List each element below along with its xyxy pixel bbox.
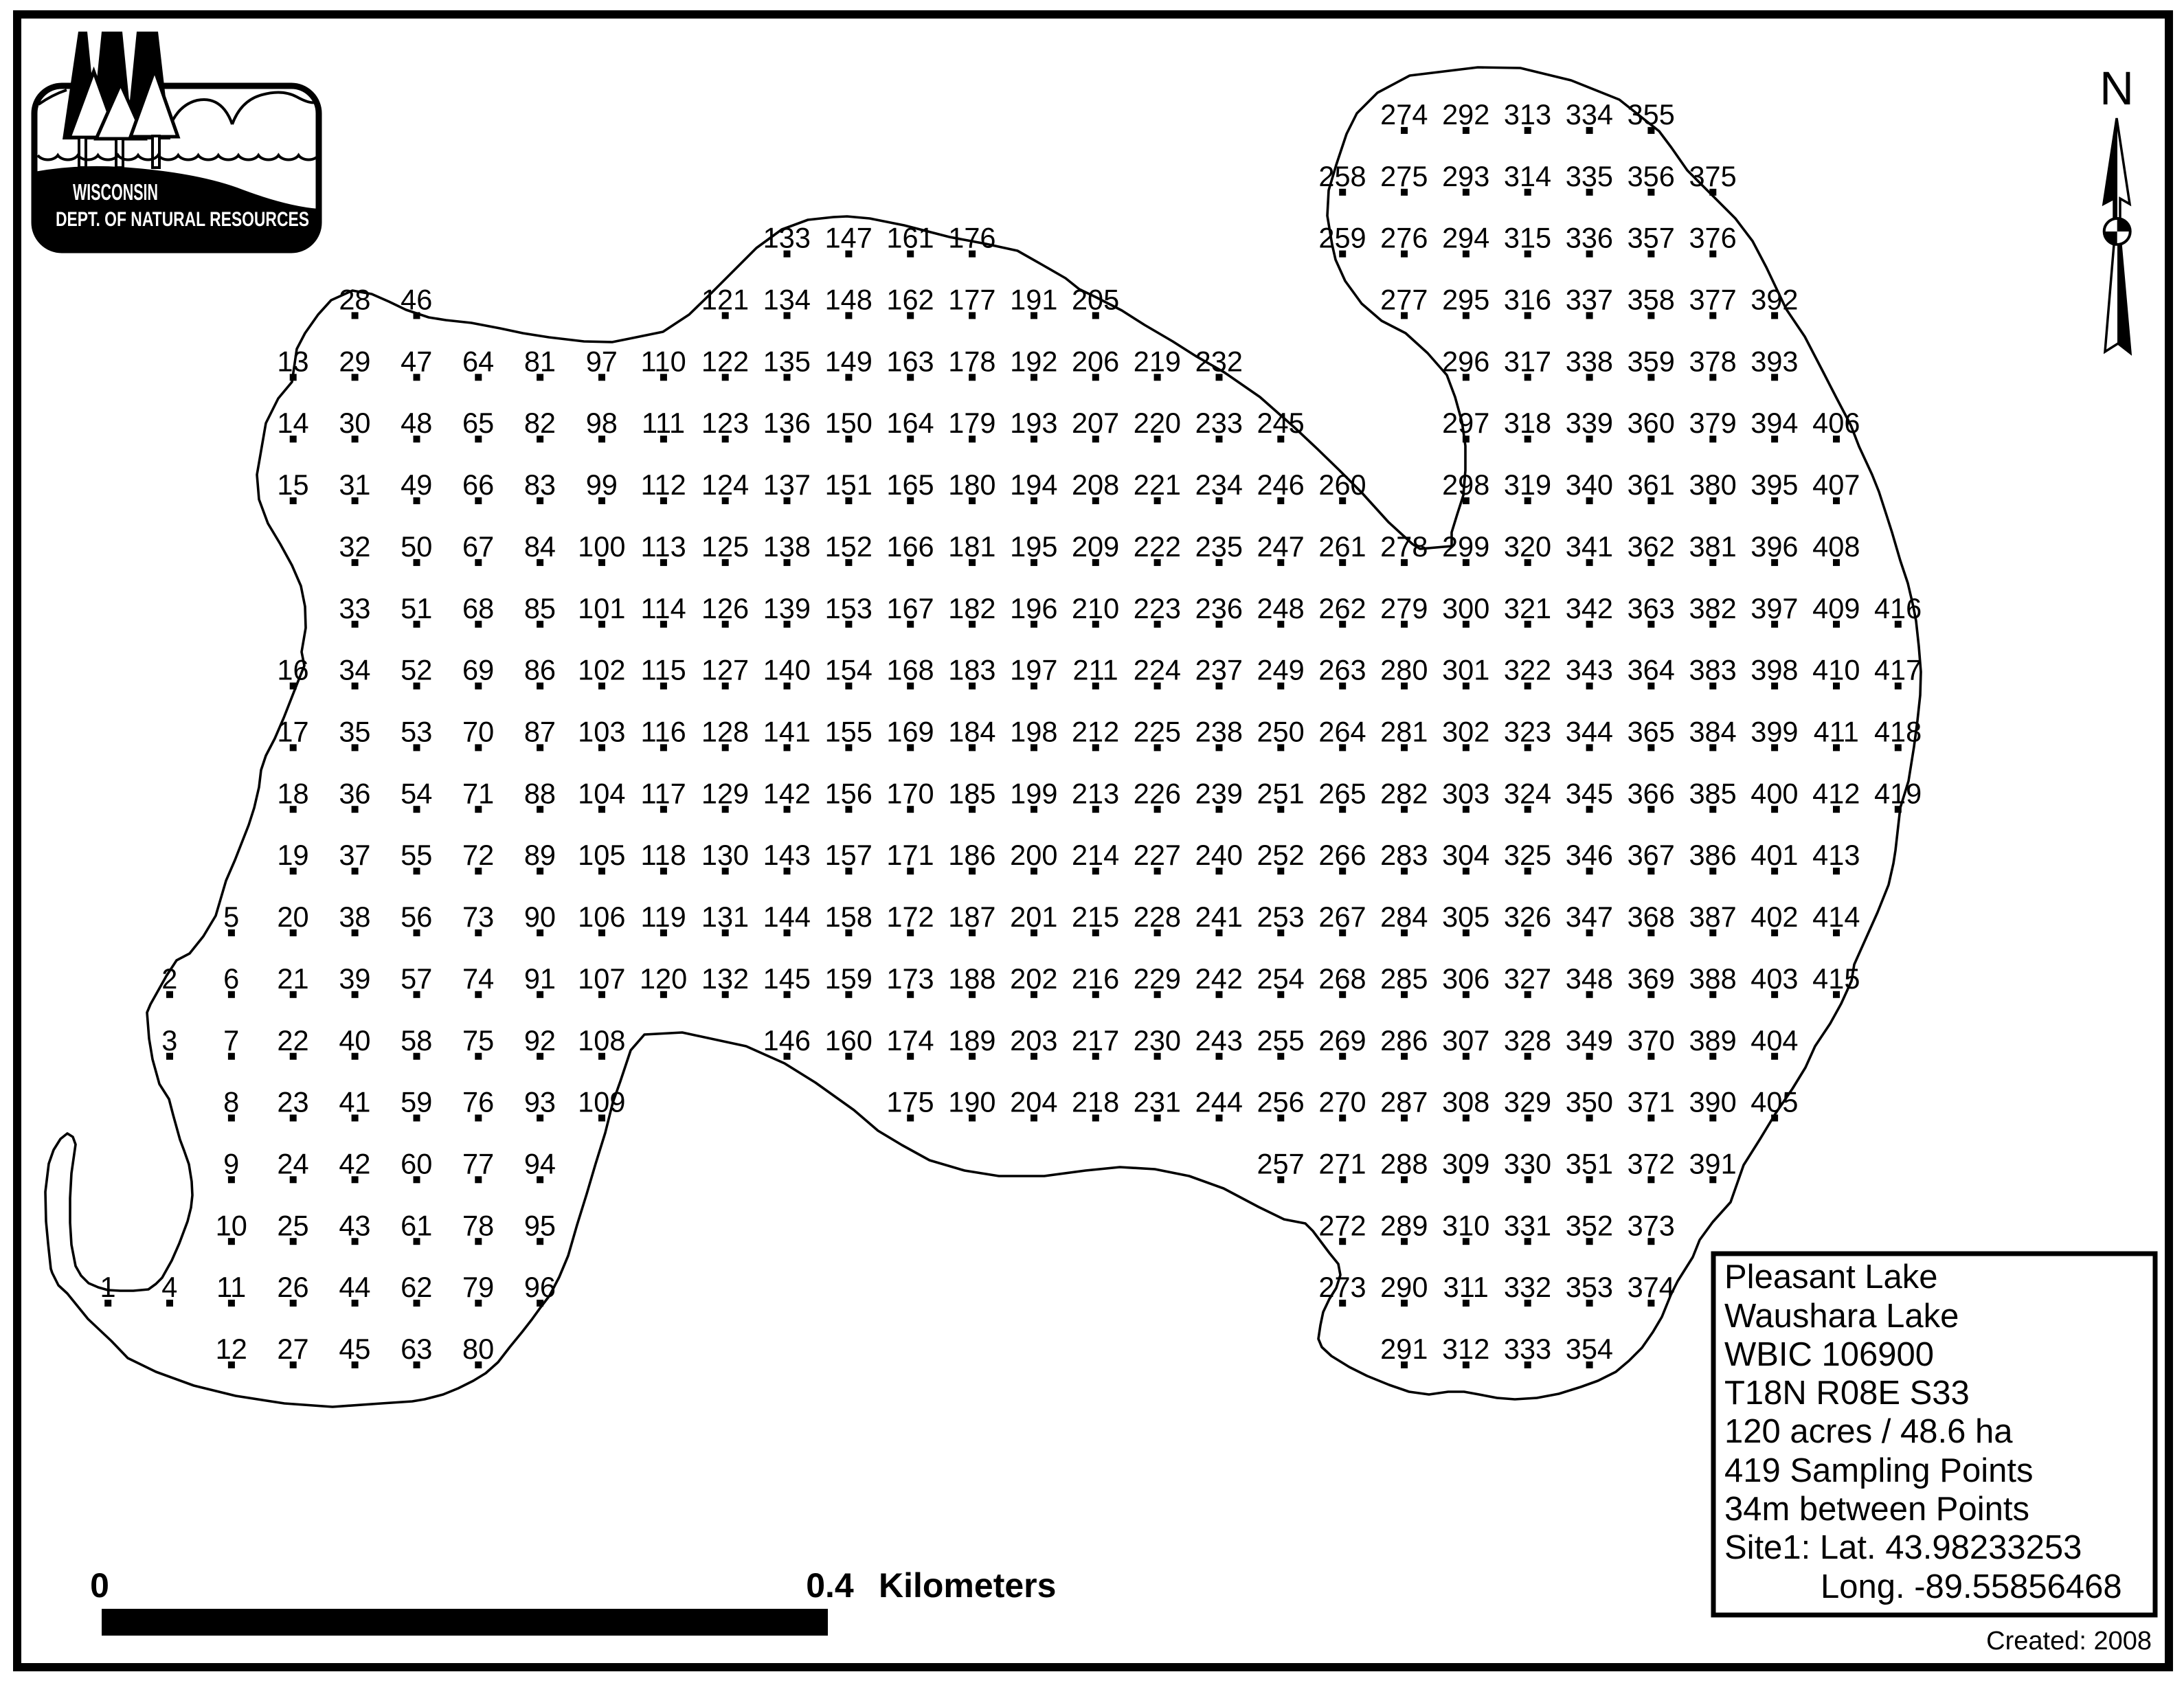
svg-text:358: 358 xyxy=(1628,284,1675,316)
svg-text:218: 218 xyxy=(1072,1086,1119,1118)
svg-text:363: 363 xyxy=(1628,592,1675,624)
svg-text:69: 69 xyxy=(462,654,494,686)
svg-text:331: 331 xyxy=(1504,1209,1551,1241)
svg-text:2: 2 xyxy=(161,962,177,995)
svg-text:284: 284 xyxy=(1380,901,1428,933)
svg-text:418: 418 xyxy=(1874,716,1922,748)
svg-text:131: 131 xyxy=(701,901,749,933)
svg-text:310: 310 xyxy=(1442,1209,1489,1241)
svg-text:171: 171 xyxy=(886,839,934,871)
svg-text:212: 212 xyxy=(1072,716,1119,748)
svg-text:59: 59 xyxy=(401,1086,432,1118)
svg-text:110: 110 xyxy=(641,345,686,377)
svg-text:5: 5 xyxy=(223,901,239,933)
svg-text:256: 256 xyxy=(1257,1086,1304,1118)
svg-text:12: 12 xyxy=(216,1333,247,1365)
svg-text:174: 174 xyxy=(886,1024,934,1057)
svg-text:321: 321 xyxy=(1504,592,1551,624)
svg-text:405: 405 xyxy=(1750,1086,1798,1118)
svg-text:166: 166 xyxy=(886,530,934,563)
svg-text:18: 18 xyxy=(277,777,308,809)
svg-text:376: 376 xyxy=(1689,222,1736,254)
svg-text:39: 39 xyxy=(339,962,370,995)
svg-text:338: 338 xyxy=(1566,345,1613,377)
svg-text:367: 367 xyxy=(1628,839,1675,871)
svg-text:99: 99 xyxy=(586,468,618,501)
svg-text:196: 196 xyxy=(1010,592,1057,624)
svg-text:305: 305 xyxy=(1442,901,1489,933)
svg-text:139: 139 xyxy=(763,592,811,624)
svg-text:34: 34 xyxy=(339,654,370,686)
svg-text:329: 329 xyxy=(1504,1086,1551,1118)
svg-text:76: 76 xyxy=(462,1086,494,1118)
svg-text:204: 204 xyxy=(1010,1086,1057,1118)
svg-text:245: 245 xyxy=(1257,407,1304,439)
svg-text:94: 94 xyxy=(524,1147,556,1179)
svg-text:120 acres / 48.6 ha: 120 acres / 48.6 ha xyxy=(1724,1413,2013,1450)
svg-text:4: 4 xyxy=(161,1271,177,1303)
svg-text:319: 319 xyxy=(1504,468,1551,501)
svg-text:47: 47 xyxy=(401,345,432,377)
svg-text:183: 183 xyxy=(948,654,995,686)
svg-text:231: 231 xyxy=(1134,1086,1181,1118)
svg-text:209: 209 xyxy=(1072,530,1119,563)
svg-text:181: 181 xyxy=(948,530,995,563)
svg-text:222: 222 xyxy=(1134,530,1181,563)
svg-text:142: 142 xyxy=(763,777,811,809)
svg-text:93: 93 xyxy=(524,1086,556,1118)
svg-text:226: 226 xyxy=(1134,777,1181,809)
svg-text:98: 98 xyxy=(586,407,618,439)
svg-text:148: 148 xyxy=(825,284,873,316)
svg-text:158: 158 xyxy=(825,901,873,933)
svg-text:13: 13 xyxy=(277,345,308,377)
svg-text:409: 409 xyxy=(1812,592,1860,624)
svg-text:86: 86 xyxy=(524,654,556,686)
svg-text:91: 91 xyxy=(524,962,556,995)
svg-text:84: 84 xyxy=(524,530,556,563)
svg-text:307: 307 xyxy=(1442,1024,1489,1057)
svg-text:341: 341 xyxy=(1566,530,1613,563)
svg-text:377: 377 xyxy=(1689,284,1736,316)
svg-text:275: 275 xyxy=(1380,160,1428,192)
svg-text:360: 360 xyxy=(1628,407,1675,439)
svg-text:375: 375 xyxy=(1689,160,1736,192)
svg-text:403: 403 xyxy=(1750,962,1798,995)
svg-text:24: 24 xyxy=(277,1147,308,1179)
svg-text:388: 388 xyxy=(1689,962,1736,995)
svg-text:130: 130 xyxy=(701,839,749,871)
svg-text:178: 178 xyxy=(948,345,995,377)
svg-text:356: 356 xyxy=(1628,160,1675,192)
svg-text:74: 74 xyxy=(462,962,494,995)
svg-text:408: 408 xyxy=(1812,530,1860,563)
svg-text:138: 138 xyxy=(763,530,811,563)
svg-text:160: 160 xyxy=(825,1024,873,1057)
svg-text:37: 37 xyxy=(339,839,370,871)
svg-text:252: 252 xyxy=(1257,839,1304,871)
svg-text:304: 304 xyxy=(1442,839,1489,871)
svg-text:119: 119 xyxy=(641,901,686,933)
svg-text:WISCONSIN: WISCONSIN xyxy=(73,179,158,205)
svg-text:104: 104 xyxy=(578,777,625,809)
svg-text:240: 240 xyxy=(1195,839,1243,871)
svg-text:274: 274 xyxy=(1380,98,1428,131)
svg-text:193: 193 xyxy=(1010,407,1057,439)
svg-text:34m between Points: 34m between Points xyxy=(1724,1491,2029,1528)
svg-text:221: 221 xyxy=(1134,468,1181,501)
svg-text:416: 416 xyxy=(1874,592,1922,624)
svg-text:120: 120 xyxy=(640,962,687,995)
svg-text:265: 265 xyxy=(1318,777,1366,809)
svg-text:326: 326 xyxy=(1504,901,1551,933)
svg-text:184: 184 xyxy=(948,716,995,748)
svg-text:410: 410 xyxy=(1812,654,1860,686)
svg-text:28: 28 xyxy=(339,284,370,316)
svg-text:380: 380 xyxy=(1689,468,1736,501)
svg-text:72: 72 xyxy=(462,839,494,871)
svg-text:254: 254 xyxy=(1257,962,1304,995)
svg-text:21: 21 xyxy=(277,962,308,995)
svg-text:250: 250 xyxy=(1257,716,1304,748)
svg-text:238: 238 xyxy=(1195,716,1243,748)
svg-text:63: 63 xyxy=(401,1333,432,1365)
svg-text:81: 81 xyxy=(524,345,556,377)
svg-text:303: 303 xyxy=(1442,777,1489,809)
svg-text:283: 283 xyxy=(1380,839,1428,871)
svg-text:56: 56 xyxy=(401,901,432,933)
svg-text:92: 92 xyxy=(524,1024,556,1057)
svg-text:230: 230 xyxy=(1134,1024,1181,1057)
svg-text:325: 325 xyxy=(1504,839,1551,871)
svg-text:128: 128 xyxy=(701,716,749,748)
svg-text:324: 324 xyxy=(1504,777,1551,809)
svg-text:419 Sampling Points: 419 Sampling Points xyxy=(1724,1452,2033,1489)
svg-text:322: 322 xyxy=(1504,654,1551,686)
svg-text:313: 313 xyxy=(1504,98,1551,131)
svg-text:281: 281 xyxy=(1380,716,1428,748)
svg-text:71: 71 xyxy=(462,777,494,809)
svg-text:261: 261 xyxy=(1318,530,1366,563)
svg-text:67: 67 xyxy=(462,530,494,563)
svg-text:N: N xyxy=(2099,62,2134,115)
svg-text:134: 134 xyxy=(763,284,811,316)
svg-text:382: 382 xyxy=(1689,592,1736,624)
svg-text:295: 295 xyxy=(1442,284,1489,316)
svg-text:188: 188 xyxy=(948,962,995,995)
svg-text:318: 318 xyxy=(1504,407,1551,439)
svg-text:220: 220 xyxy=(1134,407,1181,439)
svg-text:417: 417 xyxy=(1874,654,1922,686)
svg-text:260: 260 xyxy=(1318,468,1366,501)
svg-text:150: 150 xyxy=(825,407,873,439)
svg-text:282: 282 xyxy=(1380,777,1428,809)
svg-text:317: 317 xyxy=(1504,345,1551,377)
svg-text:3: 3 xyxy=(161,1024,177,1057)
svg-text:262: 262 xyxy=(1318,592,1366,624)
svg-text:0: 0 xyxy=(90,1566,109,1605)
svg-text:298: 298 xyxy=(1442,468,1489,501)
svg-text:140: 140 xyxy=(763,654,811,686)
svg-text:247: 247 xyxy=(1257,530,1304,563)
svg-text:371: 371 xyxy=(1628,1086,1675,1118)
svg-text:192: 192 xyxy=(1010,345,1057,377)
svg-text:344: 344 xyxy=(1566,716,1613,748)
svg-text:60: 60 xyxy=(401,1147,432,1179)
svg-text:75: 75 xyxy=(462,1024,494,1057)
svg-text:311: 311 xyxy=(1443,1271,1489,1303)
svg-text:57: 57 xyxy=(401,962,432,995)
svg-text:14: 14 xyxy=(277,407,308,439)
svg-text:29: 29 xyxy=(339,345,370,377)
svg-text:117: 117 xyxy=(641,777,686,809)
svg-text:200: 200 xyxy=(1010,839,1057,871)
svg-text:187: 187 xyxy=(948,901,995,933)
svg-text:241: 241 xyxy=(1195,901,1243,933)
svg-text:333: 333 xyxy=(1504,1333,1551,1365)
svg-text:19: 19 xyxy=(277,839,308,871)
svg-text:379: 379 xyxy=(1689,407,1736,439)
svg-text:DEPT. OF NATURAL RESOURCES: DEPT. OF NATURAL RESOURCES xyxy=(56,208,309,231)
svg-text:89: 89 xyxy=(524,839,556,871)
svg-text:272: 272 xyxy=(1318,1209,1366,1241)
svg-text:179: 179 xyxy=(948,407,995,439)
svg-text:163: 163 xyxy=(886,345,934,377)
svg-text:384: 384 xyxy=(1689,716,1736,748)
svg-text:385: 385 xyxy=(1689,777,1736,809)
svg-text:396: 396 xyxy=(1750,530,1798,563)
svg-text:397: 397 xyxy=(1750,592,1798,624)
svg-text:149: 149 xyxy=(825,345,873,377)
svg-text:340: 340 xyxy=(1566,468,1613,501)
svg-text:116: 116 xyxy=(641,716,686,748)
svg-text:Kilometers: Kilometers xyxy=(879,1566,1056,1605)
svg-text:113: 113 xyxy=(641,530,686,563)
svg-text:32: 32 xyxy=(339,530,370,563)
svg-text:133: 133 xyxy=(763,222,811,254)
svg-text:257: 257 xyxy=(1257,1147,1304,1179)
svg-text:292: 292 xyxy=(1442,98,1489,131)
svg-text:198: 198 xyxy=(1010,716,1057,748)
svg-text:337: 337 xyxy=(1566,284,1613,316)
svg-text:202: 202 xyxy=(1010,962,1057,995)
svg-text:332: 332 xyxy=(1504,1271,1551,1303)
svg-text:214: 214 xyxy=(1072,839,1119,871)
svg-text:383: 383 xyxy=(1689,654,1736,686)
svg-text:38: 38 xyxy=(339,901,370,933)
svg-text:239: 239 xyxy=(1195,777,1243,809)
svg-text:173: 173 xyxy=(886,962,934,995)
svg-text:65: 65 xyxy=(462,407,494,439)
svg-text:372: 372 xyxy=(1628,1147,1675,1179)
svg-text:191: 191 xyxy=(1010,284,1057,316)
svg-text:229: 229 xyxy=(1134,962,1181,995)
svg-text:328: 328 xyxy=(1504,1024,1551,1057)
svg-text:351: 351 xyxy=(1566,1147,1613,1179)
svg-text:270: 270 xyxy=(1318,1086,1366,1118)
svg-text:35: 35 xyxy=(339,716,370,748)
svg-text:395: 395 xyxy=(1750,468,1798,501)
svg-text:352: 352 xyxy=(1566,1209,1613,1241)
svg-text:146: 146 xyxy=(763,1024,811,1057)
svg-text:205: 205 xyxy=(1072,284,1119,316)
svg-text:44: 44 xyxy=(339,1271,370,1303)
svg-text:413: 413 xyxy=(1812,839,1860,871)
svg-text:77: 77 xyxy=(462,1147,494,1179)
svg-text:31: 31 xyxy=(339,468,370,501)
svg-text:151: 151 xyxy=(825,468,873,501)
svg-text:213: 213 xyxy=(1072,777,1119,809)
svg-text:381: 381 xyxy=(1689,530,1736,563)
svg-text:346: 346 xyxy=(1566,839,1613,871)
svg-text:111: 111 xyxy=(642,407,685,439)
svg-text:26: 26 xyxy=(277,1271,308,1303)
svg-text:235: 235 xyxy=(1195,530,1243,563)
svg-text:127: 127 xyxy=(701,654,749,686)
svg-text:280: 280 xyxy=(1380,654,1428,686)
svg-text:143: 143 xyxy=(763,839,811,871)
svg-text:286: 286 xyxy=(1380,1024,1428,1057)
svg-text:106: 106 xyxy=(578,901,625,933)
svg-text:248: 248 xyxy=(1257,592,1304,624)
svg-text:302: 302 xyxy=(1442,716,1489,748)
svg-text:27: 27 xyxy=(277,1333,308,1365)
svg-text:335: 335 xyxy=(1566,160,1613,192)
svg-text:30: 30 xyxy=(339,407,370,439)
svg-text:271: 271 xyxy=(1318,1147,1366,1179)
svg-text:299: 299 xyxy=(1442,530,1489,563)
svg-text:88: 88 xyxy=(524,777,556,809)
svg-text:316: 316 xyxy=(1504,284,1551,316)
svg-text:210: 210 xyxy=(1072,592,1119,624)
svg-text:62: 62 xyxy=(401,1271,432,1303)
svg-text:374: 374 xyxy=(1628,1271,1675,1303)
svg-text:123: 123 xyxy=(701,407,749,439)
svg-text:Long. -89.55856468: Long. -89.55856468 xyxy=(1821,1568,2122,1605)
svg-text:8: 8 xyxy=(223,1086,239,1118)
svg-text:301: 301 xyxy=(1442,654,1489,686)
svg-text:287: 287 xyxy=(1380,1086,1428,1118)
svg-text:362: 362 xyxy=(1628,530,1675,563)
svg-text:264: 264 xyxy=(1318,716,1366,748)
svg-text:348: 348 xyxy=(1566,962,1613,995)
svg-text:206: 206 xyxy=(1072,345,1119,377)
svg-text:101: 101 xyxy=(578,592,625,624)
svg-text:314: 314 xyxy=(1504,160,1551,192)
svg-text:162: 162 xyxy=(886,284,934,316)
svg-text:17: 17 xyxy=(277,716,308,748)
svg-text:11: 11 xyxy=(216,1271,246,1303)
svg-text:87: 87 xyxy=(524,716,556,748)
svg-text:51: 51 xyxy=(401,592,432,624)
svg-text:23: 23 xyxy=(277,1086,308,1118)
svg-text:164: 164 xyxy=(886,407,934,439)
svg-text:201: 201 xyxy=(1010,901,1057,933)
svg-text:323: 323 xyxy=(1504,716,1551,748)
svg-text:175: 175 xyxy=(886,1086,934,1118)
svg-text:309: 309 xyxy=(1442,1147,1489,1179)
svg-text:406: 406 xyxy=(1812,407,1860,439)
svg-text:15: 15 xyxy=(277,468,308,501)
svg-text:95: 95 xyxy=(524,1209,556,1241)
svg-text:276: 276 xyxy=(1380,222,1428,254)
svg-text:109: 109 xyxy=(578,1086,625,1118)
svg-text:45: 45 xyxy=(339,1333,370,1365)
svg-text:219: 219 xyxy=(1134,345,1181,377)
svg-text:297: 297 xyxy=(1442,407,1489,439)
svg-text:306: 306 xyxy=(1442,962,1489,995)
svg-text:353: 353 xyxy=(1566,1271,1613,1303)
svg-text:359: 359 xyxy=(1628,345,1675,377)
svg-text:365: 365 xyxy=(1628,716,1675,748)
svg-text:279: 279 xyxy=(1380,592,1428,624)
svg-text:122: 122 xyxy=(701,345,749,377)
svg-text:114: 114 xyxy=(641,592,686,624)
svg-text:73: 73 xyxy=(462,901,494,933)
svg-text:216: 216 xyxy=(1072,962,1119,995)
svg-text:320: 320 xyxy=(1504,530,1551,563)
svg-text:22: 22 xyxy=(277,1024,308,1057)
svg-text:294: 294 xyxy=(1442,222,1489,254)
svg-text:0.4: 0.4 xyxy=(806,1566,854,1605)
svg-text:349: 349 xyxy=(1566,1024,1613,1057)
svg-text:170: 170 xyxy=(886,777,934,809)
svg-text:20: 20 xyxy=(277,901,308,933)
svg-text:T18N R08E S33: T18N R08E S33 xyxy=(1724,1375,1970,1412)
svg-text:291: 291 xyxy=(1380,1333,1428,1365)
svg-text:118: 118 xyxy=(641,839,686,871)
svg-text:390: 390 xyxy=(1689,1086,1736,1118)
svg-text:357: 357 xyxy=(1628,222,1675,254)
svg-text:355: 355 xyxy=(1628,98,1675,131)
svg-text:361: 361 xyxy=(1628,468,1675,501)
svg-text:112: 112 xyxy=(641,468,686,501)
svg-text:186: 186 xyxy=(948,839,995,871)
svg-text:83: 83 xyxy=(524,468,556,501)
svg-text:412: 412 xyxy=(1812,777,1860,809)
svg-text:237: 237 xyxy=(1195,654,1243,686)
svg-text:129: 129 xyxy=(701,777,749,809)
svg-text:125: 125 xyxy=(701,530,749,563)
svg-text:246: 246 xyxy=(1257,468,1304,501)
svg-text:232: 232 xyxy=(1195,345,1243,377)
svg-text:64: 64 xyxy=(462,345,494,377)
svg-text:211: 211 xyxy=(1073,654,1118,686)
svg-text:296: 296 xyxy=(1442,345,1489,377)
svg-text:165: 165 xyxy=(886,468,934,501)
svg-text:157: 157 xyxy=(825,839,873,871)
svg-text:52: 52 xyxy=(401,654,432,686)
svg-text:115: 115 xyxy=(641,654,686,686)
svg-text:70: 70 xyxy=(462,716,494,748)
svg-text:373: 373 xyxy=(1628,1209,1675,1241)
svg-text:369: 369 xyxy=(1628,962,1675,995)
svg-text:285: 285 xyxy=(1380,962,1428,995)
svg-text:58: 58 xyxy=(401,1024,432,1057)
svg-text:392: 392 xyxy=(1750,284,1798,316)
svg-text:207: 207 xyxy=(1072,407,1119,439)
svg-text:169: 169 xyxy=(886,716,934,748)
svg-text:96: 96 xyxy=(524,1271,556,1303)
svg-text:55: 55 xyxy=(401,839,432,871)
svg-text:156: 156 xyxy=(825,777,873,809)
svg-text:Site1: Lat. 43.98233253: Site1: Lat. 43.98233253 xyxy=(1724,1529,2082,1566)
svg-text:100: 100 xyxy=(578,530,625,563)
svg-text:66: 66 xyxy=(462,468,494,501)
svg-text:387: 387 xyxy=(1689,901,1736,933)
svg-text:244: 244 xyxy=(1195,1086,1243,1118)
svg-text:54: 54 xyxy=(401,777,432,809)
